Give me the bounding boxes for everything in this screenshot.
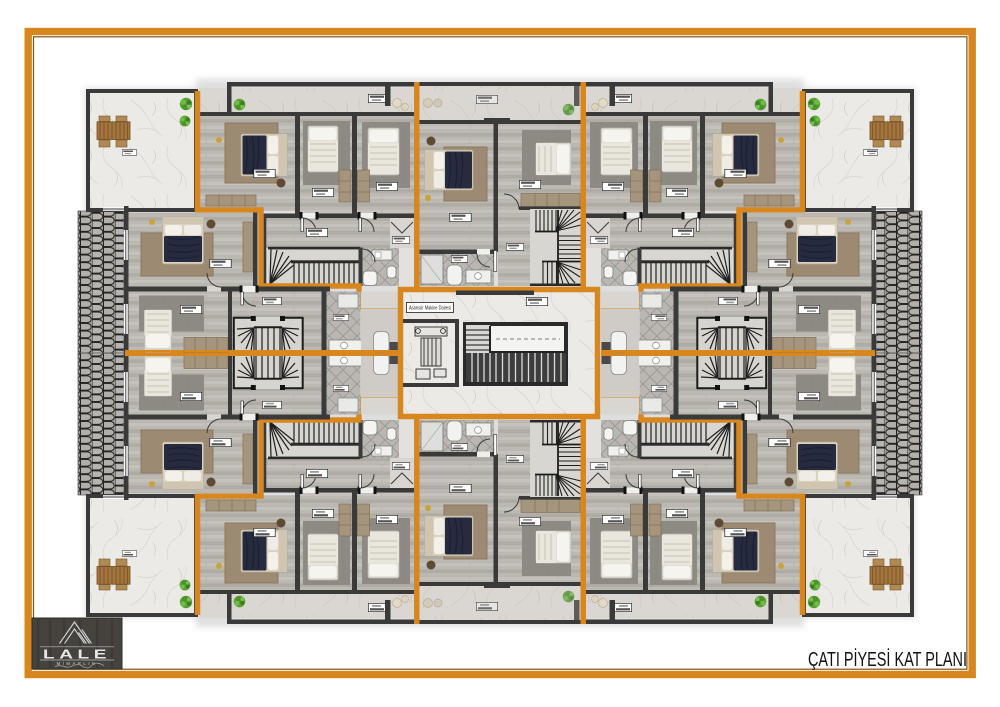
svg-text:MİMARLIK: MİMARLIK	[57, 661, 98, 666]
svg-text:ÇATI PİYESİ KAT PLANI: ÇATI PİYESİ KAT PLANI	[808, 648, 967, 671]
svg-text:LALE: LALE	[43, 648, 111, 662]
svg-text:Asansör Makine Dairesi: Asansör Makine Dairesi	[409, 306, 451, 312]
